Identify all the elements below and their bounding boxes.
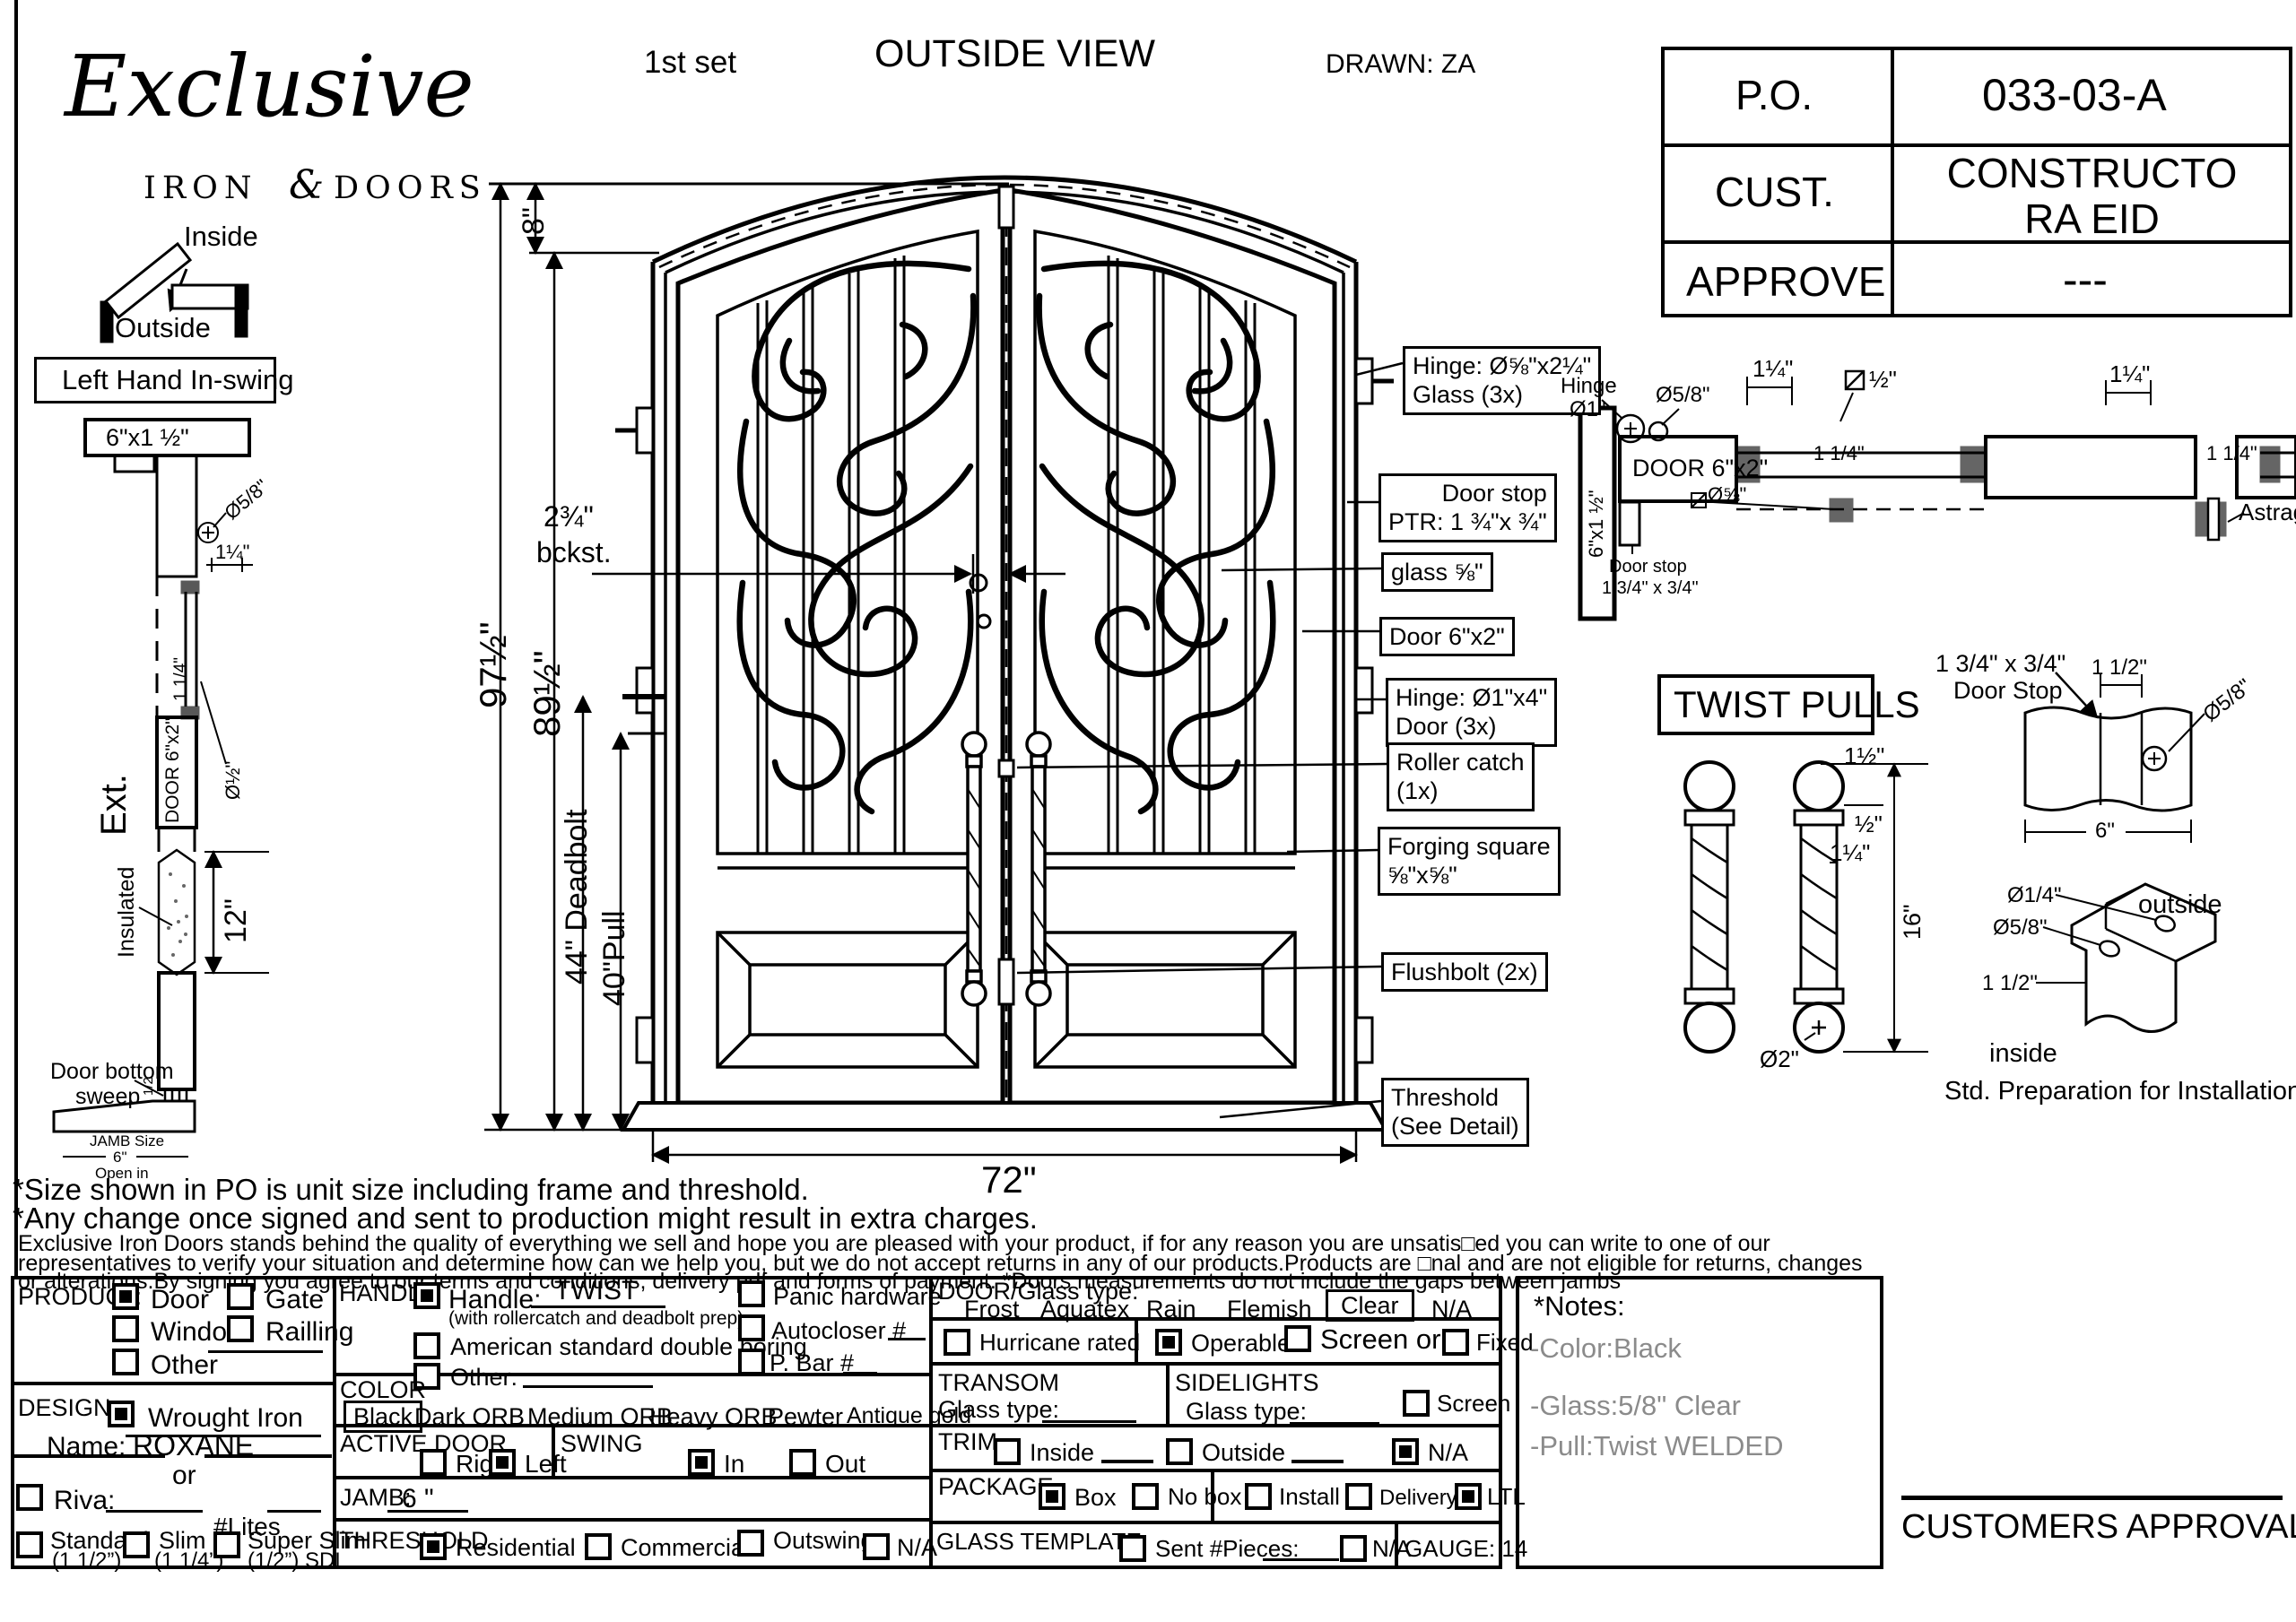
- design-standard-sub: (1 1/2”): [52, 1549, 121, 1572]
- dim-8: 8": [518, 207, 551, 235]
- color-darkorb-option[interactable]: Dark ORB: [414, 1404, 525, 1429]
- head-dia58b: Ø⅝": [1708, 484, 1746, 505]
- callout-text: Door 6"x2": [1389, 622, 1505, 651]
- template-sent-field[interactable]: [1263, 1558, 1339, 1561]
- callout-text: (1x): [1396, 776, 1525, 805]
- package-label: PACKAGE: [938, 1474, 1054, 1499]
- design-riva-field[interactable]: [106, 1510, 203, 1513]
- dim-44-deadbolt: 44" Deadbolt: [561, 810, 594, 984]
- prep-inside-label: inside: [1989, 1040, 2057, 1067]
- sidelights-screen-checkbox[interactable]: [1403, 1390, 1430, 1417]
- product-other-field[interactable]: [208, 1350, 323, 1353]
- callout-text: Threshold: [1391, 1083, 1519, 1112]
- trim-na-label: N/A: [1428, 1440, 1468, 1465]
- logo-script: Exclusive: [65, 43, 474, 133]
- jamb-head-size: 6"x1 ½": [106, 425, 189, 450]
- sweep-label-2: sweep: [75, 1085, 140, 1108]
- color-heavyorb-option[interactable]: Heavy ORB: [649, 1404, 778, 1429]
- swing-label: SWING: [561, 1431, 643, 1456]
- head-hinge-label: Hinge: [1561, 375, 1617, 397]
- head-stop-label: Door stop: [1609, 558, 1687, 577]
- design-standard-checkbox[interactable]: [16, 1531, 43, 1558]
- callout-text: (See Detail): [1391, 1112, 1519, 1141]
- trim-outside-field[interactable]: [1291, 1460, 1344, 1463]
- autocloser-checkbox[interactable]: [738, 1314, 765, 1341]
- logo-ampersand: &: [289, 165, 324, 206]
- handle-american-checkbox[interactable]: [413, 1332, 440, 1359]
- color-label: COLOR: [340, 1377, 426, 1402]
- head-stop-size: 1 3/4" x 3/4": [1602, 579, 1699, 598]
- head-astragal-label: Astragal: [2239, 500, 2296, 525]
- stop-detail-label: Door Stop: [1953, 678, 2063, 703]
- view-title: OUTSIDE VIEW: [874, 34, 1155, 74]
- prep-outside-label: outside: [2138, 891, 2222, 918]
- handle-other-field[interactable]: [523, 1385, 653, 1388]
- glass-rain-option[interactable]: Rain: [1146, 1297, 1196, 1322]
- jamb-dim114: 1¼": [215, 542, 249, 562]
- or-divider-right: [204, 1454, 332, 1458]
- package-delivery-checkbox[interactable]: [1345, 1483, 1372, 1510]
- trim-outside-checkbox[interactable]: [1166, 1438, 1193, 1465]
- head-door-label: DOOR 6"x2": [1632, 455, 1768, 481]
- twist-pulls-title: TWIST PULLS: [1674, 685, 1883, 724]
- product-door-label: Door: [151, 1286, 209, 1314]
- active-right-checkbox[interactable]: [420, 1449, 447, 1476]
- design-label: DESIGN:: [18, 1395, 117, 1420]
- package-nobox-label: No box: [1168, 1485, 1241, 1509]
- set-label: 1st set: [644, 47, 736, 80]
- callout-hinge-door: Hinge: Ø1"x4" Door (3x): [1386, 678, 1557, 747]
- pull-dim-112: 1½": [1844, 744, 1884, 768]
- notes-box-title: *Notes:: [1534, 1292, 1894, 1322]
- cust-value: CONSTRUCTORA EID: [1937, 151, 2247, 241]
- callout-text: PTR: 1 ¾"x ¾": [1388, 507, 1547, 536]
- jamb-dim12: 12": [221, 898, 253, 943]
- trim-inside-field[interactable]: [1101, 1460, 1153, 1463]
- callout-forging-square: Forging square ⅝"x⅝": [1378, 827, 1561, 896]
- hand-swing-box: Left Hand In-swing: [34, 357, 276, 403]
- active-left-checkbox[interactable]: [489, 1449, 516, 1476]
- callout-threshold: Threshold (See Detail): [1381, 1078, 1529, 1147]
- glass-flemish-option[interactable]: Flemish: [1227, 1297, 1312, 1322]
- product-door-checkbox[interactable]: [112, 1283, 139, 1310]
- product-railling-label: Railling: [265, 1318, 353, 1347]
- pull-dim-12: ½": [1855, 812, 1883, 837]
- package-install-label: Install: [1279, 1485, 1340, 1509]
- autocloser-field[interactable]: [888, 1338, 926, 1340]
- dim-97: 97½": [474, 621, 513, 708]
- twist-pulls-title-box: TWIST PULLS: [1657, 674, 1874, 735]
- callout-flushbolt: Flushbolt (2x): [1381, 952, 1548, 992]
- pull-dia-2: Ø2": [1760, 1047, 1799, 1071]
- prep-dim-112: 1 1/2": [1982, 972, 2038, 994]
- trim-label: TRIM: [938, 1429, 997, 1454]
- swing-in-label: In: [724, 1451, 744, 1477]
- pbar-checkbox[interactable]: [738, 1349, 765, 1375]
- stop-dim-112: 1 1/2": [2092, 656, 2147, 679]
- handle-value[interactable]: TWIST: [554, 1277, 638, 1305]
- outside-label: Outside: [115, 314, 211, 343]
- design-name-field[interactable]: [126, 1435, 321, 1437]
- threshold-na-label: N/A: [897, 1535, 937, 1560]
- logo-doors: DOORS: [334, 172, 487, 205]
- swing-out-label: Out: [825, 1451, 865, 1477]
- jamb-door-box-label: DOOR 6"x2": [163, 717, 183, 823]
- notes-box-pull: -Pull:Twist WELDED: [1530, 1432, 1891, 1462]
- threshold-commercial-label: Commercial: [621, 1535, 750, 1560]
- threshold-outswing-label: Outswing: [773, 1528, 874, 1553]
- design-wrought-label: Wrought Iron: [148, 1404, 303, 1433]
- jamb-ext-label: Ext.: [95, 774, 133, 836]
- package-install-checkbox[interactable]: [1245, 1483, 1272, 1510]
- or-divider-left: [14, 1454, 165, 1458]
- product-other-checkbox[interactable]: [112, 1349, 139, 1375]
- approve-value: ---: [2063, 256, 2108, 304]
- callout-text: Roller catch: [1396, 748, 1525, 776]
- cust-label: CUST.: [1715, 170, 1834, 213]
- callout-text: Flushbolt (2x): [1391, 958, 1538, 986]
- design-riva-checkbox[interactable]: [16, 1484, 43, 1511]
- notes-box: *Notes: -Color:Black -Glass:5/8" Clear -…: [1516, 1276, 1883, 1569]
- pbar-field[interactable]: [843, 1372, 877, 1375]
- jamb-dia12: Ø½": [222, 761, 243, 800]
- product-window-checkbox[interactable]: [112, 1315, 139, 1342]
- package-ltl-checkbox[interactable]: [1455, 1483, 1482, 1510]
- head-dim114a: 1¼": [1752, 357, 1793, 381]
- jamb-form-value[interactable]: 6 ": [402, 1485, 434, 1514]
- logo-iron: IRON: [143, 172, 258, 205]
- product-other-label: Other: [151, 1351, 218, 1380]
- screen-or-label: Screen or: [1320, 1325, 1440, 1355]
- callout-text: Forging square: [1387, 832, 1551, 861]
- hand-swing-label: Left Hand In-swing: [62, 366, 299, 395]
- operable-label: Operable: [1191, 1331, 1291, 1356]
- pull-dim-16: 16": [1900, 904, 1925, 940]
- callout-text: Door (3x): [1396, 712, 1547, 741]
- autocloser-label: Autocloser #: [771, 1318, 906, 1343]
- jamb-dim114-rot: 1 1/4": [172, 657, 190, 701]
- product-gate-checkbox[interactable]: [227, 1283, 254, 1310]
- dim-backset: 2¾": [544, 502, 594, 533]
- product-gate-label: Gate: [265, 1286, 324, 1314]
- sidelights-glass-field[interactable]: [1290, 1422, 1379, 1425]
- template-sent-checkbox[interactable]: [1119, 1535, 1146, 1562]
- design-or-label: or: [172, 1462, 196, 1490]
- design-superslim-checkbox[interactable]: [213, 1531, 240, 1558]
- dim-backset-label: bckst.: [536, 538, 612, 568]
- prep-dia-14: Ø1/4": [2007, 884, 2062, 906]
- pbar-label: P. Bar #: [770, 1350, 854, 1375]
- trim-outside-label: Outside: [1202, 1440, 1285, 1465]
- threshold-residential-label: Residential: [456, 1535, 576, 1560]
- gauge-label: GAUGE: 14: [1405, 1537, 1527, 1561]
- stop-dim-6: 6": [2095, 820, 2115, 842]
- dim-72: 72": [981, 1160, 1037, 1200]
- prep-dia-58: Ø5/8": [1993, 916, 2048, 939]
- swing-out-checkbox[interactable]: [789, 1449, 816, 1476]
- twist-pulls-drawing: [1685, 762, 1928, 1052]
- note-line-2: *Any change once signed and sent to prod…: [13, 1203, 1038, 1235]
- design-slim-checkbox[interactable]: [123, 1531, 150, 1558]
- operable-checkbox[interactable]: [1155, 1329, 1182, 1356]
- threshold-residential-checkbox[interactable]: [420, 1533, 447, 1560]
- glass-frost-option[interactable]: Frost: [964, 1297, 1020, 1322]
- pull-dim-114: 1¼": [1830, 841, 1870, 865]
- dim-89: 89½": [527, 650, 567, 737]
- panic-checkbox[interactable]: [738, 1280, 765, 1307]
- color-pewter-option[interactable]: Pewter: [768, 1404, 843, 1429]
- threshold-commercial-checkbox[interactable]: [585, 1533, 612, 1560]
- callout-roller-catch: Roller catch (1x): [1387, 742, 1535, 811]
- po-value: 033-03-A: [1982, 72, 2167, 119]
- callout-door-size: Door 6"x2": [1379, 617, 1515, 656]
- stop-detail-size: 1 3/4" x 3/4": [1935, 651, 2066, 676]
- head-jamb-size: 6"x1 ½": [1586, 490, 1606, 558]
- glass-clear-option[interactable]: Clear: [1326, 1289, 1414, 1322]
- transom-label: TRANSOM: [938, 1370, 1059, 1395]
- handle-prep-note: (with rollercatch and deadbolt prep): [448, 1309, 744, 1329]
- handle-other-label: Other:: [450, 1365, 517, 1390]
- trim-na-checkbox[interactable]: [1392, 1438, 1419, 1465]
- head-dia58: Ø5/8": [1656, 384, 1710, 406]
- sidelights-screen-label: Screen: [1437, 1392, 1510, 1416]
- sidelights-label: SIDELIGHTS: [1175, 1370, 1319, 1395]
- dim-40-pull: 40"Pull: [599, 910, 631, 1006]
- screen-or-checkbox[interactable]: [1284, 1325, 1311, 1352]
- color-black-option[interactable]: Black: [344, 1401, 422, 1433]
- head-hinge-dia: Ø1": [1570, 398, 1606, 421]
- threshold-outswing-checkbox[interactable]: [737, 1530, 764, 1557]
- inside-label: Inside: [184, 222, 258, 252]
- sweep-half-dim: 1/2: [142, 1077, 156, 1096]
- jamb-form-label: JAMB:: [340, 1485, 412, 1510]
- head-sq12: ½": [1869, 368, 1897, 392]
- glass-na-option[interactable]: N/A: [1431, 1297, 1472, 1322]
- swing-in-checkbox[interactable]: [688, 1449, 715, 1476]
- callout-text: ⅝"x⅝": [1387, 861, 1551, 889]
- approval-label: CUSTOMERS APPROVAL: [1901, 1510, 2283, 1546]
- hurricane-checkbox[interactable]: [944, 1329, 970, 1356]
- head-dim114d: 1 1/4": [2206, 443, 2257, 464]
- panic-label: Panic hardware: [773, 1284, 942, 1309]
- approve-label: APPROVE: [1686, 260, 1885, 303]
- notes-box-glass: -Glass:5/8" Clear: [1530, 1392, 1891, 1421]
- glass-aquatex-option[interactable]: Aquatex: [1040, 1297, 1129, 1322]
- handle-checkbox[interactable]: [413, 1282, 440, 1309]
- glass-template-label: GLASS TEMPLATE: [936, 1530, 1142, 1554]
- trim-inside-label: Inside: [1030, 1440, 1094, 1465]
- threshold-na-checkbox[interactable]: [863, 1533, 890, 1560]
- transom-glass-label: Glass type:: [938, 1397, 1059, 1422]
- design-wrought-checkbox[interactable]: [108, 1401, 135, 1427]
- fixed-checkbox[interactable]: [1442, 1329, 1469, 1356]
- callout-text: glass ⅝": [1391, 558, 1483, 586]
- package-nobox-checkbox[interactable]: [1132, 1483, 1159, 1510]
- callout-text: Hinge: Ø1"x4": [1396, 683, 1547, 712]
- po-label: P.O.: [1735, 74, 1813, 117]
- product-railling-checkbox[interactable]: [227, 1315, 254, 1342]
- package-box-checkbox[interactable]: [1039, 1483, 1065, 1510]
- approval-signature-line[interactable]: [1901, 1496, 2283, 1500]
- head-dim114c: 1¼": [2109, 362, 2150, 386]
- trim-inside-checkbox[interactable]: [994, 1438, 1021, 1465]
- design-superslim-sub: (1/2”) SDL: [248, 1549, 347, 1572]
- callout-door-stop: Door stop PTR: 1 ¾"x ¾": [1378, 473, 1557, 542]
- sidelights-glass-label: Glass type:: [1186, 1399, 1307, 1424]
- jamb-size-label: JAMB Size: [90, 1133, 164, 1149]
- dimension-lines: [489, 184, 1356, 1162]
- package-delivery-label: Delivery: [1379, 1487, 1457, 1509]
- drawing-sheet: Exclusive IRON & DOORS 1st set OUTSIDE V…: [0, 0, 2296, 1622]
- prep-caption: Std. Preparation for Installation: [1944, 1078, 2296, 1105]
- jamb-insulated-label: Insulated: [115, 867, 138, 958]
- callout-text: Door stop: [1388, 479, 1547, 507]
- template-na-checkbox[interactable]: [1340, 1535, 1367, 1562]
- transom-glass-field[interactable]: [1042, 1420, 1136, 1423]
- notes-box-color: -Color:Black: [1530, 1334, 1891, 1364]
- jamb-size-value: 6": [113, 1149, 127, 1166]
- package-box-label: Box: [1074, 1485, 1117, 1510]
- jamb-form-field[interactable]: [387, 1510, 468, 1513]
- drawn-by-label: DRAWN: ZA: [1326, 50, 1475, 79]
- head-dim114b: 1 1/4": [1813, 443, 1865, 464]
- hurricane-label: Hurricane rated: [979, 1331, 1140, 1355]
- callout-glass: glass ⅝": [1381, 552, 1493, 592]
